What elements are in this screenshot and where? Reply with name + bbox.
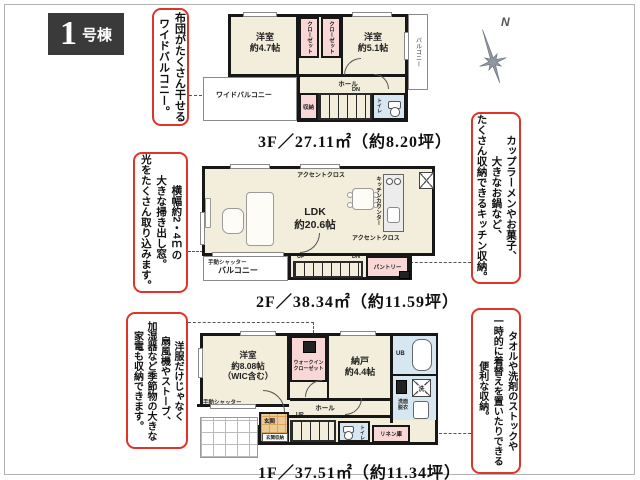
f1-wall-4 <box>290 398 391 401</box>
f2-sofa <box>246 192 274 246</box>
f3-toilet-room: トイレ <box>372 93 406 120</box>
f1-entrance-label: 玄関 <box>264 417 275 425</box>
f2-accent-top-label: アクセントクロス <box>276 170 366 179</box>
f2-sink <box>387 207 400 223</box>
leader-window <box>188 251 203 252</box>
f1-entrance-storage: 玄関収納 <box>262 433 288 442</box>
f2-kitchen-counter <box>383 174 404 232</box>
f1-wic-label: ウォークイン クローゼット <box>287 360 330 373</box>
f2-table <box>222 208 244 234</box>
note-linen: タオルや洗剤のストックや 一時的に着替えを置いたりできる 便利な収納。 <box>471 308 521 474</box>
f2-stairs <box>293 261 363 278</box>
f3-bedroom-right-label: 洋室 約5.1帖 <box>341 32 405 55</box>
f1-wall-2 <box>327 336 329 398</box>
compass-icon: N <box>465 10 527 98</box>
f1-linen-label: リネン庫 <box>380 430 402 438</box>
f2-chair-1 <box>347 192 353 198</box>
f1-hall-label: ホール <box>305 405 345 413</box>
compass-north-label: N <box>501 15 510 29</box>
f2-kitchen-counter-label: キッチンカウンター <box>374 176 382 234</box>
f2-window-top-1 <box>230 164 270 169</box>
f1-washer-pan: 洗 <box>412 379 431 397</box>
leader-pantry <box>410 262 471 263</box>
f2-chair-3 <box>347 202 353 208</box>
f2-pantry-label: パントリー <box>374 263 402 271</box>
f1-toilet-label: トイレ <box>359 425 366 440</box>
f1-window-top-1 <box>240 331 276 336</box>
f2-stove-burner-2 <box>394 178 401 185</box>
floorplan-sheet: 1 号棟 N 布団がたくさん干せる ワイドバルコニー。 横幅約2・4ｍの 大きな… <box>0 0 640 480</box>
note-wide-balcony-text: 布団がたくさん干せる ワイドバルコニー。 <box>155 12 187 122</box>
f3-closet-right-label: クローゼット <box>327 21 335 54</box>
f1-washer-label: 洗 <box>417 384 425 393</box>
f1-bath-label: UB <box>396 351 405 357</box>
f1-wic-fixture-icon <box>303 341 316 353</box>
note-wic-text: 洋服だけじゃなく 扇風機やストーブ、 加湿器など季節物の大きな 家電も収納できま… <box>130 321 184 441</box>
f1-water-heater-box <box>396 380 407 394</box>
f1-paved-approach <box>200 417 258 458</box>
f3-storage-label: 収納 <box>303 103 314 111</box>
f3-window-right <box>352 12 392 17</box>
note-wide-balcony: 布団がたくさん干せる ワイドバルコニー。 <box>152 8 189 126</box>
f3-closet-right: クローゼット <box>321 17 341 58</box>
f1-linen: リネン庫 <box>372 425 410 443</box>
f2-up-label: UP <box>297 254 305 260</box>
note-window-text: 横幅約2・4ｍの 大きな掃き出し窓。 光をたくさん取り込みます。 <box>138 154 184 291</box>
f1-bath: UB <box>393 336 436 374</box>
f2-dn-label: DN <box>352 254 360 260</box>
f2-area-label: 2F／38.34㎡（約11.59坪） <box>235 288 480 312</box>
f2-window-top-2 <box>300 164 340 169</box>
f3-toilet-label: トイレ <box>376 98 383 113</box>
note-linen-text: タオルや洗剤のストックや 一時的に着替えを置いたりできる 便利な収納。 <box>474 316 518 466</box>
f2-panel-box <box>399 271 410 279</box>
f2-stove-burner-1 <box>386 178 393 185</box>
leader-wic-h <box>188 322 314 323</box>
f1-bathtub-icon <box>412 339 432 371</box>
f3-window-left <box>243 12 277 17</box>
f3-toilet-bowl-icon <box>390 107 400 117</box>
f3-storage: 収納 <box>299 93 318 120</box>
f3-closet-left: クローゼット <box>299 17 319 58</box>
f1-washroom: 洗 洗面 脱衣 <box>393 374 436 420</box>
f1-entrance-storage-label: 玄関収納 <box>266 435 284 441</box>
f3-wall-2 <box>341 17 343 77</box>
f2-ldk-label: LDK 約20.6帖 <box>285 206 345 232</box>
f1-window-top-2 <box>340 331 376 336</box>
f3-area-label: 3F／27.11㎡（約8.20坪） <box>230 128 480 152</box>
f3-hall-label: ホール <box>330 81 366 89</box>
f3-stairs <box>318 93 372 120</box>
f1-wic <box>290 336 327 382</box>
f3-bedroom-left-label: 洋室 約4.7帖 <box>234 32 296 55</box>
f1-window-bedroom <box>210 404 256 409</box>
f2-dining-table <box>352 188 374 210</box>
f1-up-label: UP <box>296 412 304 418</box>
f3-balcony-side-label: バルコニー <box>414 37 423 67</box>
f1-entrance: 玄関 玄関収納 <box>259 412 289 443</box>
building-number: 1 <box>60 17 77 51</box>
f2-accent-right-label: アクセントクロス <box>352 233 412 242</box>
f3-balcony-side: バルコニー <box>408 14 428 90</box>
f1-bedroom-label: 洋室 約8.08帖 （WIC含む） <box>212 350 284 382</box>
f1-window-left <box>198 348 203 378</box>
f1-storeroom-label: 納戸 約4.4帖 <box>332 356 388 379</box>
building-suffix: 号棟 <box>82 24 112 45</box>
f2-balcony-label: バルコニー <box>218 265 258 276</box>
note-window: 横幅約2・4ｍの 大きな掃き出し窓。 光をたくさん取り込みます。 <box>133 152 188 293</box>
f1-toilet-room: トイレ <box>338 421 370 442</box>
f3-wide-balcony-label: ワイドバルコニー <box>216 90 286 100</box>
f2-tv-board <box>205 198 211 228</box>
f3-closet-left-label: クローゼット <box>305 21 313 54</box>
note-kitchen-storage-text: カップラーメンやお菓子、 大きなお鍋など、 たくさん収納できるキッチン収納。 <box>474 114 518 282</box>
note-wic: 洋服だけじゃなく 扇風機やストーブ、 加湿器など季節物の大きな 家電も収納できま… <box>126 312 188 449</box>
f1-area-label: 1F／37.51㎡（約11.34坪） <box>237 459 482 480</box>
f1-washroom-label: 洗面 脱衣 <box>393 399 413 412</box>
f1-stairs <box>290 420 336 442</box>
f1-toilet-bowl-icon <box>344 431 353 440</box>
f1-washbasin-icon <box>413 401 429 419</box>
f2-window-balcony <box>212 252 284 257</box>
f2-hatch-box <box>419 172 434 189</box>
building-badge: 1 号棟 <box>48 13 124 55</box>
